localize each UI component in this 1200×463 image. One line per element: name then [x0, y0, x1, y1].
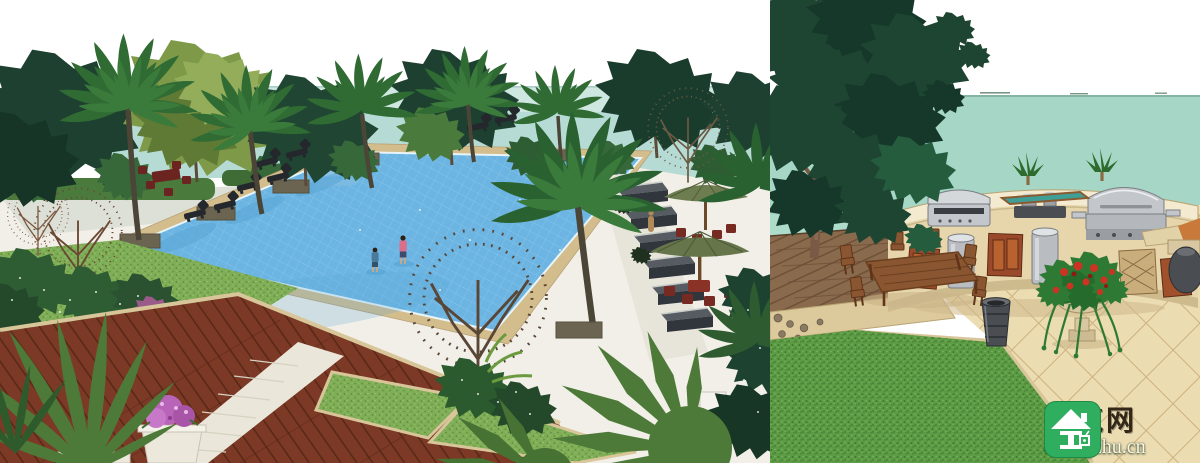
fountain-statue [648, 210, 654, 232]
panel-pool-rendering [0, 0, 770, 463]
panel-patio-rendering [770, 0, 1200, 463]
logo-background [1045, 402, 1101, 458]
screenshot-canvas: 虫筑网 chongzhu.cn [0, 0, 1200, 463]
chongzhu-logo [1044, 401, 1101, 458]
barrel-bin [982, 298, 1010, 346]
watermark: 虫筑网 chongzhu.cn [1044, 401, 1200, 463]
